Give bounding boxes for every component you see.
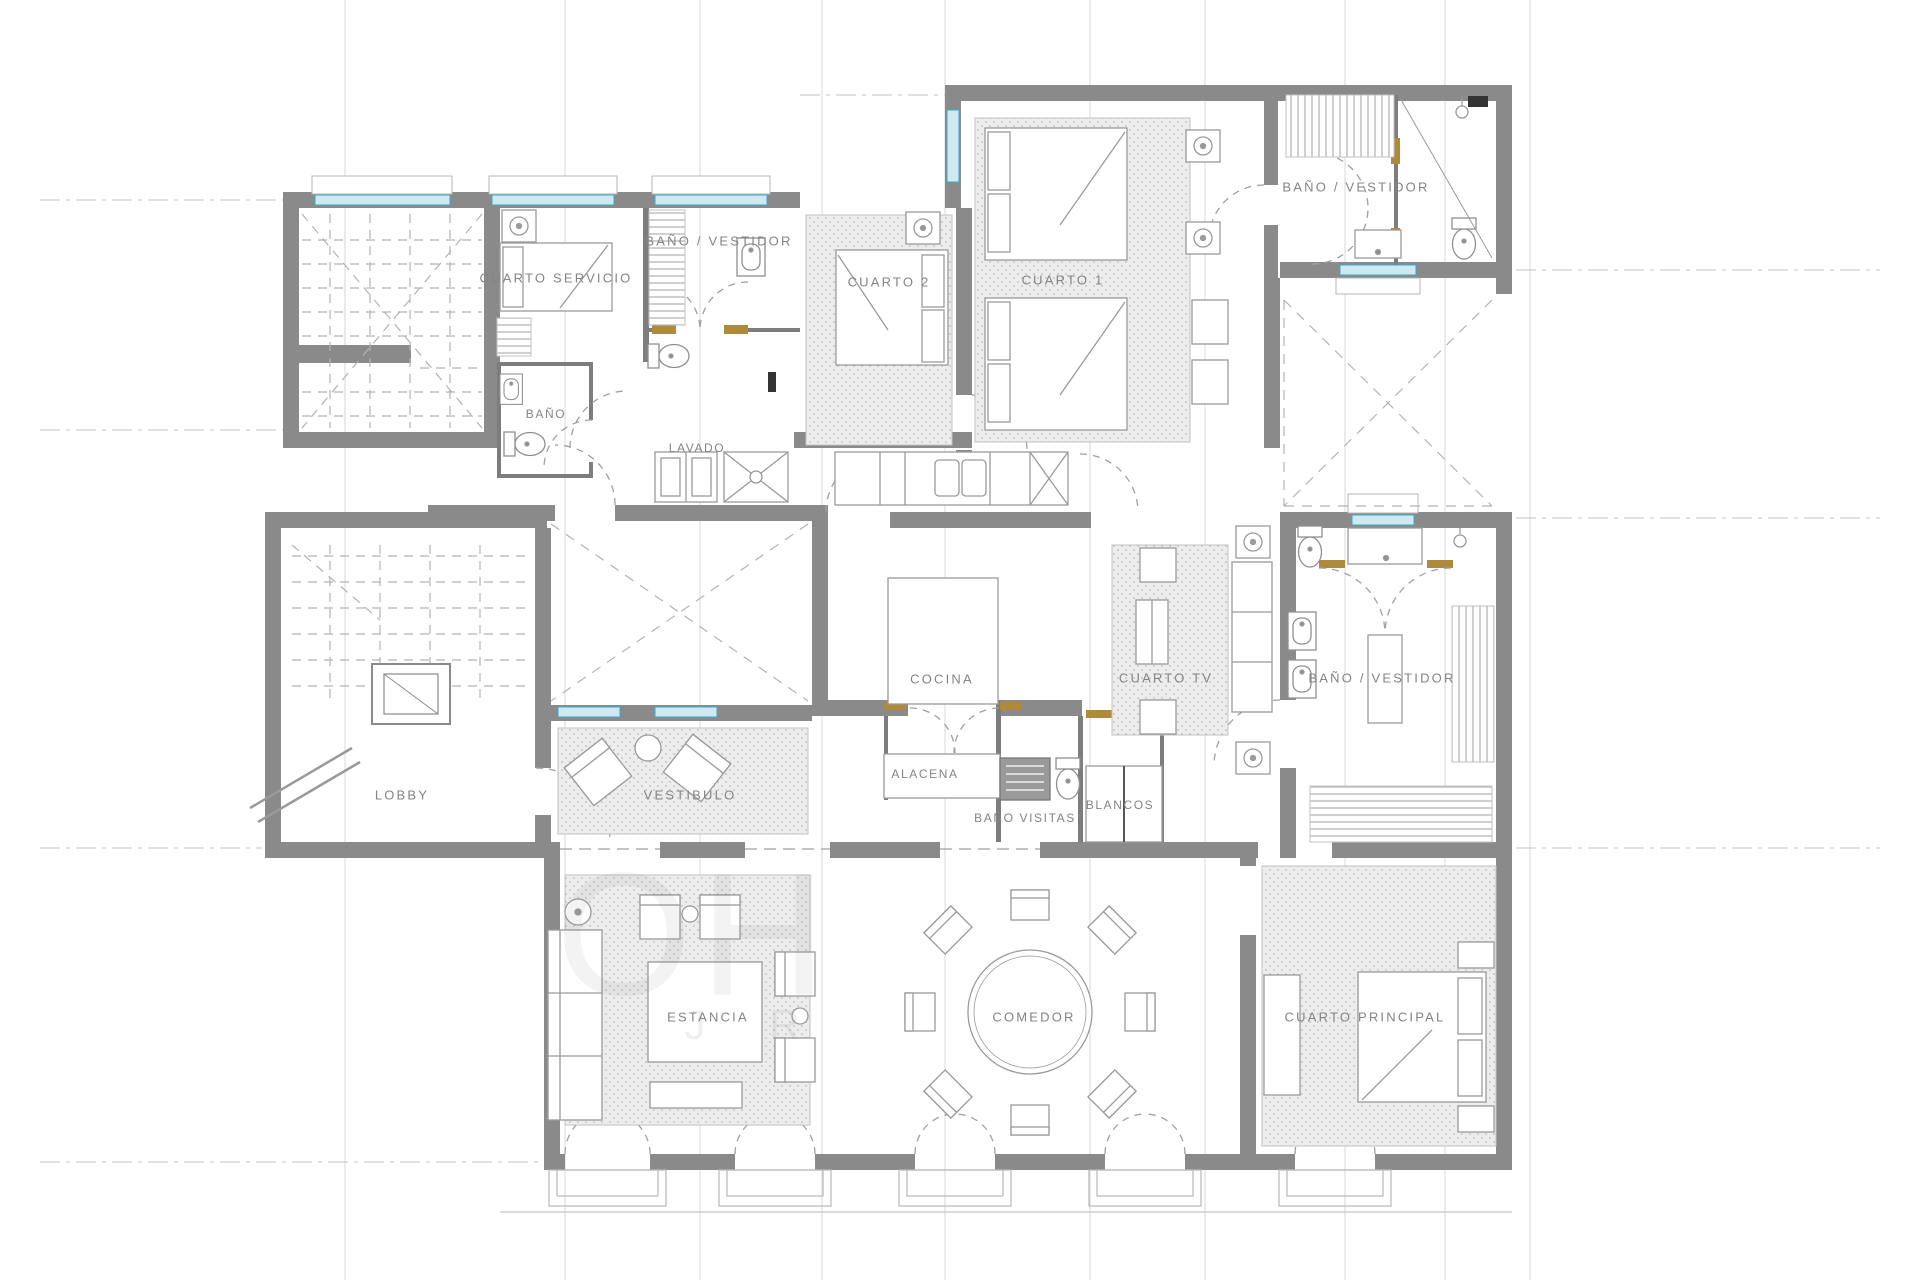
room-label-alacena: ALACENA	[891, 767, 958, 781]
furniture-kitchen-counter	[835, 452, 1068, 505]
balconies	[500, 1170, 1512, 1212]
elevator	[372, 664, 450, 724]
room-label-cuarto-servicio: CUARTO SERVICIO	[480, 271, 633, 286]
stairwell-pattern	[302, 214, 482, 428]
room-label-bano: BAÑO	[526, 407, 566, 421]
floor-plan-svg	[0, 0, 1920, 1280]
furniture-bano-vestidor-principal	[1288, 526, 1466, 723]
room-label-lavado: LAVADO	[669, 441, 726, 455]
floor-plan-page: OH J R CUARTO SERVICIO BAÑO / VESTIDOR C…	[0, 0, 1920, 1280]
room-label-cuarto-2: CUARTO 2	[848, 275, 931, 290]
room-label-blancos: BLANCOS	[1086, 798, 1155, 812]
furniture-bano-visitas	[1000, 758, 1080, 800]
room-label-cocina: COCINA	[910, 672, 974, 687]
furniture-cuarto-servicio	[500, 210, 612, 311]
room-label-lobby: LOBBY	[375, 788, 429, 803]
room-label-bano-vestidor-servicio: BAÑO / VESTIDOR	[645, 234, 792, 249]
room-label-comedor: COMEDOR	[992, 1010, 1075, 1025]
room-label-cuarto-principal: CUARTO PRINCIPAL	[1285, 1010, 1446, 1025]
room-label-bano-visitas: BAÑO VISITAS	[974, 811, 1076, 825]
room-label-bano-vestidor-cuarto1: BAÑO / VESTIDOR	[1282, 180, 1429, 195]
room-label-cuarto-tv: CUARTO TV	[1119, 671, 1213, 686]
patio-x-pattern	[551, 524, 808, 701]
furniture-lavado	[655, 452, 788, 502]
room-label-cuarto-1: CUARTO 1	[1022, 273, 1105, 288]
room-label-vestibulo: VESTIBULO	[644, 788, 737, 803]
room-label-estancia: ESTANCIA	[667, 1010, 749, 1025]
room-label-bano-vestidor-principal: BAÑO / VESTIDOR	[1308, 671, 1455, 686]
terrace-x-pattern	[1284, 300, 1492, 506]
